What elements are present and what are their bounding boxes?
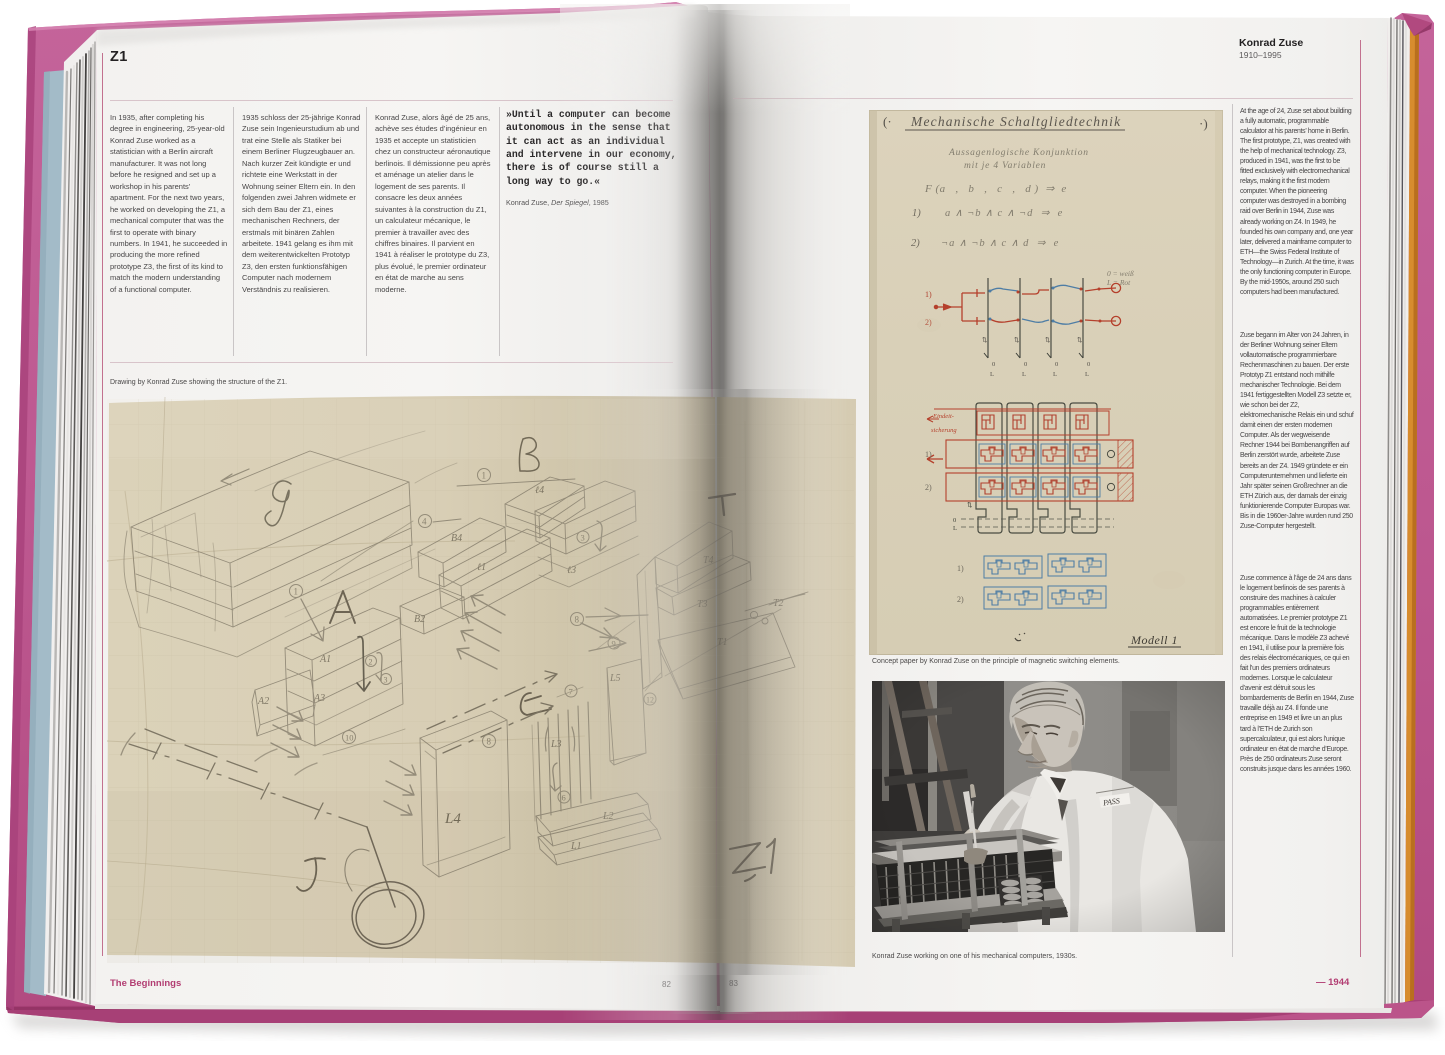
svg-text:L: L: [953, 525, 957, 532]
svg-text:1: 1: [294, 587, 299, 597]
svg-text:Mechanische Schaltgliedtechni: Mechanische Schaltgliedtechnik: [910, 114, 1121, 129]
svg-text:T3: T3: [697, 599, 708, 610]
svg-text:B2: B2: [414, 614, 425, 625]
svg-text:Aussagenlogische Konjunktion: Aussagenlogische Konjunktion: [948, 148, 1089, 158]
svg-text:2): 2): [911, 238, 920, 249]
svg-text:ℓ3: ℓ3: [567, 565, 576, 576]
svg-text:3: 3: [384, 676, 388, 685]
svg-text:L5: L5: [609, 673, 621, 684]
svg-text:⇅: ⇅: [1077, 337, 1083, 344]
svg-text:6: 6: [562, 793, 566, 803]
svg-text:ℓ4: ℓ4: [535, 485, 544, 496]
svg-text:0 = weiß: 0 = weiß: [1107, 269, 1134, 278]
svg-text:9: 9: [612, 639, 616, 649]
svg-text:mit je 4 Variablen: mit je 4 Variablen: [964, 161, 1046, 171]
svg-text:⇅: ⇅: [1045, 337, 1051, 344]
svg-text:8: 8: [487, 737, 492, 747]
svg-text:2: 2: [369, 658, 373, 667]
svg-text:A2: A2: [257, 696, 269, 707]
svg-text:⇅: ⇅: [967, 502, 973, 509]
svg-text:⇅: ⇅: [982, 337, 988, 344]
svg-text:2): 2): [925, 483, 932, 492]
svg-text:L: L: [990, 371, 994, 378]
svg-text:1): 1): [925, 450, 932, 459]
svg-text:Modell 1: Modell 1: [1130, 633, 1178, 647]
svg-text:0: 0: [1055, 361, 1058, 368]
svg-text:⇅: ⇅: [1014, 337, 1020, 344]
svg-text:·): ·): [1199, 116, 1208, 131]
svg-text:1): 1): [925, 290, 932, 299]
svg-text:1): 1): [957, 564, 964, 573]
svg-text:10: 10: [345, 733, 354, 743]
svg-text:3: 3: [581, 533, 585, 543]
svg-text:B4: B4: [451, 533, 462, 544]
svg-text:12: 12: [646, 696, 654, 705]
svg-text:L = Rot: L = Rot: [1106, 278, 1131, 287]
svg-text:sicherung: sicherung: [931, 427, 957, 434]
svg-text:8: 8: [575, 615, 580, 625]
svg-text:0: 0: [1024, 361, 1027, 368]
svg-text:L: L: [1053, 371, 1057, 378]
svg-text:¬a ∧ ¬b ∧ c ∧ d ⇒ e: ¬a ∧ ¬b ∧ c ∧ d ⇒ e: [941, 238, 1059, 249]
svg-text:(·: (·: [883, 114, 892, 129]
svg-text:L1: L1: [570, 841, 582, 852]
svg-text:0: 0: [992, 361, 995, 368]
svg-text:4: 4: [422, 517, 427, 527]
svg-text:0: 0: [1087, 361, 1090, 368]
svg-text:L4: L4: [444, 811, 461, 827]
svg-text:ℓ1: ℓ1: [477, 562, 486, 573]
svg-text:F (a , b , c , d ): F (a , b , c , d ) ⇒ e: [924, 183, 1067, 195]
svg-text:Eindeit-: Eindeit-: [932, 413, 954, 420]
svg-text:L3: L3: [550, 739, 562, 750]
svg-text:L: L: [1022, 371, 1026, 378]
svg-text:L: L: [1085, 371, 1089, 378]
svg-text:2): 2): [957, 595, 964, 604]
svg-text:a ∧ ¬b ∧ c ∧ ¬d ⇒ e: a ∧ ¬b ∧ c ∧ ¬d ⇒ e: [945, 208, 1063, 219]
svg-text:0: 0: [953, 517, 956, 524]
svg-text:1: 1: [482, 471, 487, 481]
svg-text:T4: T4: [703, 555, 714, 566]
svg-text:A1: A1: [319, 654, 331, 665]
svg-text:1): 1): [912, 208, 921, 219]
